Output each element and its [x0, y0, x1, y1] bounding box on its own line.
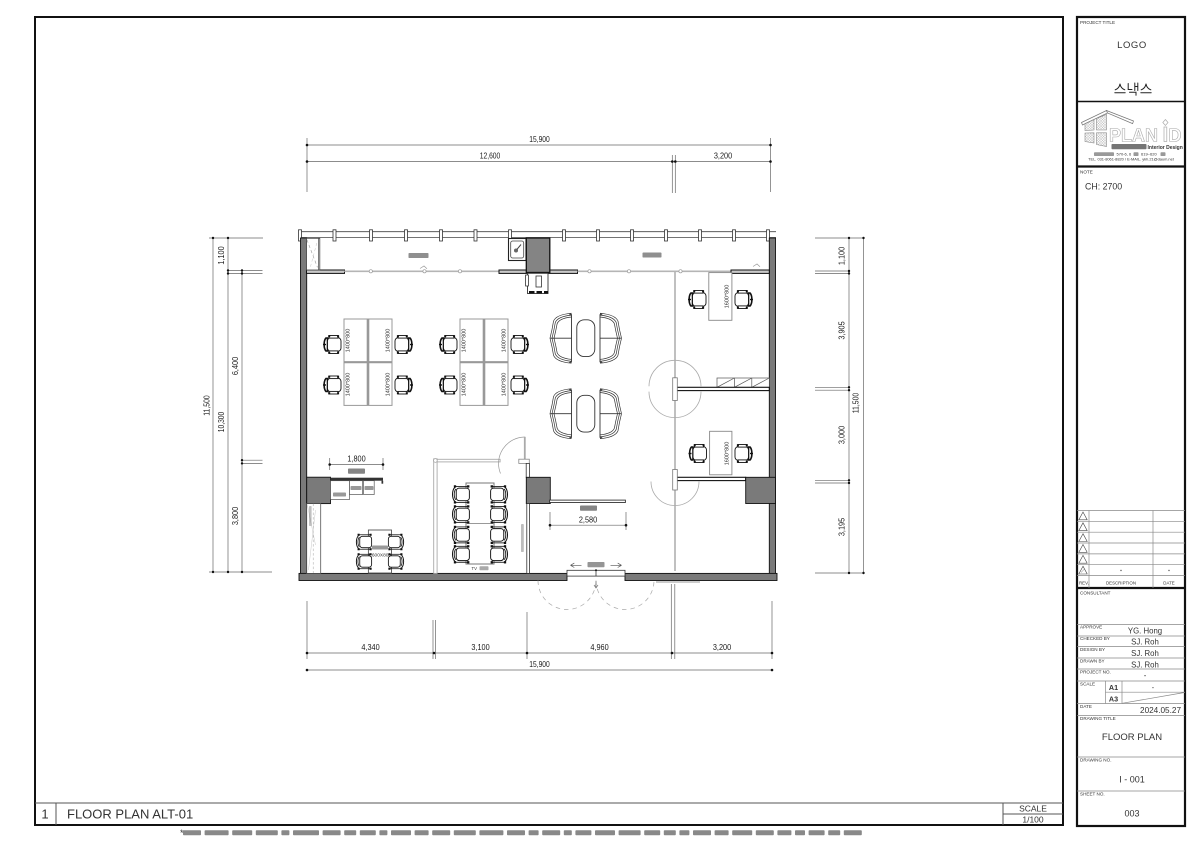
svg-text:1600*800: 1600*800	[725, 442, 731, 466]
svg-text:NOTE: NOTE	[1080, 170, 1093, 175]
svg-text:A3: A3	[1109, 694, 1118, 703]
svg-text:DESCRIPTION: DESCRIPTION	[1106, 581, 1136, 586]
svg-text:CHECKED BY: CHECKED BY	[1080, 636, 1110, 641]
svg-text:10,300: 10,300	[216, 411, 226, 432]
svg-text:DRAWN BY: DRAWN BY	[1080, 659, 1105, 664]
svg-text:12,600: 12,600	[480, 151, 501, 161]
svg-text:2,580: 2,580	[579, 515, 598, 525]
svg-text:DATE: DATE	[1163, 581, 1174, 586]
svg-text:SJ. Roh: SJ. Roh	[1131, 649, 1159, 658]
svg-text:REV.: REV.	[1079, 581, 1089, 586]
svg-text:4,340: 4,340	[361, 642, 380, 652]
svg-text:SHEET NO.: SHEET NO.	[1080, 792, 1105, 797]
svg-text:1,100: 1,100	[216, 246, 226, 265]
svg-text:TEL. 031-8061-8820 / E-MAIL. y: TEL. 031-8061-8820 / E-MAIL. ykh.21@daum…	[1088, 157, 1175, 162]
svg-text:2024.05.27: 2024.05.27	[1140, 706, 1181, 715]
svg-text:YG. Hong: YG. Hong	[1128, 627, 1162, 636]
svg-text:APPROVE: APPROVE	[1080, 625, 1102, 630]
svg-text:1400*800: 1400*800	[462, 373, 468, 397]
svg-text:1400*800: 1400*800	[386, 373, 392, 397]
svg-text:TV: TV	[472, 566, 478, 571]
svg-text:FLOOR PLAN: FLOOR PLAN	[1102, 732, 1162, 743]
svg-text:D: D	[1169, 126, 1182, 146]
svg-text:FLOOR PLAN ALT-01: FLOOR PLAN ALT-01	[67, 807, 193, 822]
svg-text:1400*800: 1400*800	[462, 329, 468, 353]
svg-text:6,400: 6,400	[230, 357, 240, 376]
svg-text:CH: 2700: CH: 2700	[1085, 182, 1122, 192]
svg-text:1,100: 1,100	[837, 247, 847, 266]
svg-text:1400*800: 1400*800	[346, 373, 352, 397]
svg-text:15,900: 15,900	[529, 134, 550, 144]
svg-text:SCALE: SCALE	[1080, 682, 1095, 687]
svg-text:1400*800: 1400*800	[386, 329, 392, 353]
svg-text:DESIGN BY: DESIGN BY	[1080, 647, 1105, 652]
svg-text:3,905: 3,905	[837, 321, 847, 340]
svg-text:DRAWING NO.: DRAWING NO.	[1080, 758, 1111, 763]
svg-text:11,500: 11,500	[202, 395, 212, 416]
svg-text:A1: A1	[1109, 683, 1118, 692]
svg-text:4,960: 4,960	[590, 642, 609, 652]
svg-text:PROJECT TITLE: PROJECT TITLE	[1080, 20, 1115, 25]
svg-text:15,900: 15,900	[529, 659, 550, 669]
svg-text:DATE: DATE	[1080, 704, 1092, 709]
svg-text:I - 001: I - 001	[1119, 775, 1145, 785]
svg-text:LOGO: LOGO	[1117, 40, 1147, 51]
svg-text:3,200: 3,200	[714, 151, 733, 161]
svg-text:1400*800: 1400*800	[346, 329, 352, 353]
svg-text:3,200: 3,200	[713, 642, 732, 652]
svg-text:PLAN: PLAN	[1109, 126, 1158, 146]
svg-text:1: 1	[41, 807, 48, 822]
svg-text:3,800: 3,800	[230, 507, 240, 526]
svg-text:Interior Design: Interior Design	[1148, 145, 1183, 151]
svg-text:SJ. Roh: SJ. Roh	[1131, 661, 1159, 670]
svg-text:1400*800: 1400*800	[502, 373, 508, 397]
svg-text:-: -	[1144, 671, 1147, 680]
svg-text:SCALE: SCALE	[1019, 804, 1047, 814]
svg-text:3,195: 3,195	[837, 518, 847, 537]
svg-text:1400*800: 1400*800	[502, 329, 508, 353]
svg-text:1600*800: 1600*800	[725, 285, 731, 309]
svg-text:3,100: 3,100	[471, 642, 490, 652]
svg-text:1/100: 1/100	[1022, 815, 1044, 825]
svg-text:1,800: 1,800	[347, 454, 366, 464]
svg-text:3,000: 3,000	[837, 426, 847, 445]
svg-text:SJ. Roh: SJ. Roh	[1131, 638, 1159, 647]
svg-text:PROJECT NO.: PROJECT NO.	[1080, 670, 1111, 675]
svg-text:003: 003	[1124, 809, 1139, 819]
svg-text:11,500: 11,500	[851, 392, 861, 413]
svg-text:CONSULTANT: CONSULTANT	[1080, 591, 1111, 596]
svg-text:DRAWING TITLE: DRAWING TITLE	[1080, 716, 1116, 721]
